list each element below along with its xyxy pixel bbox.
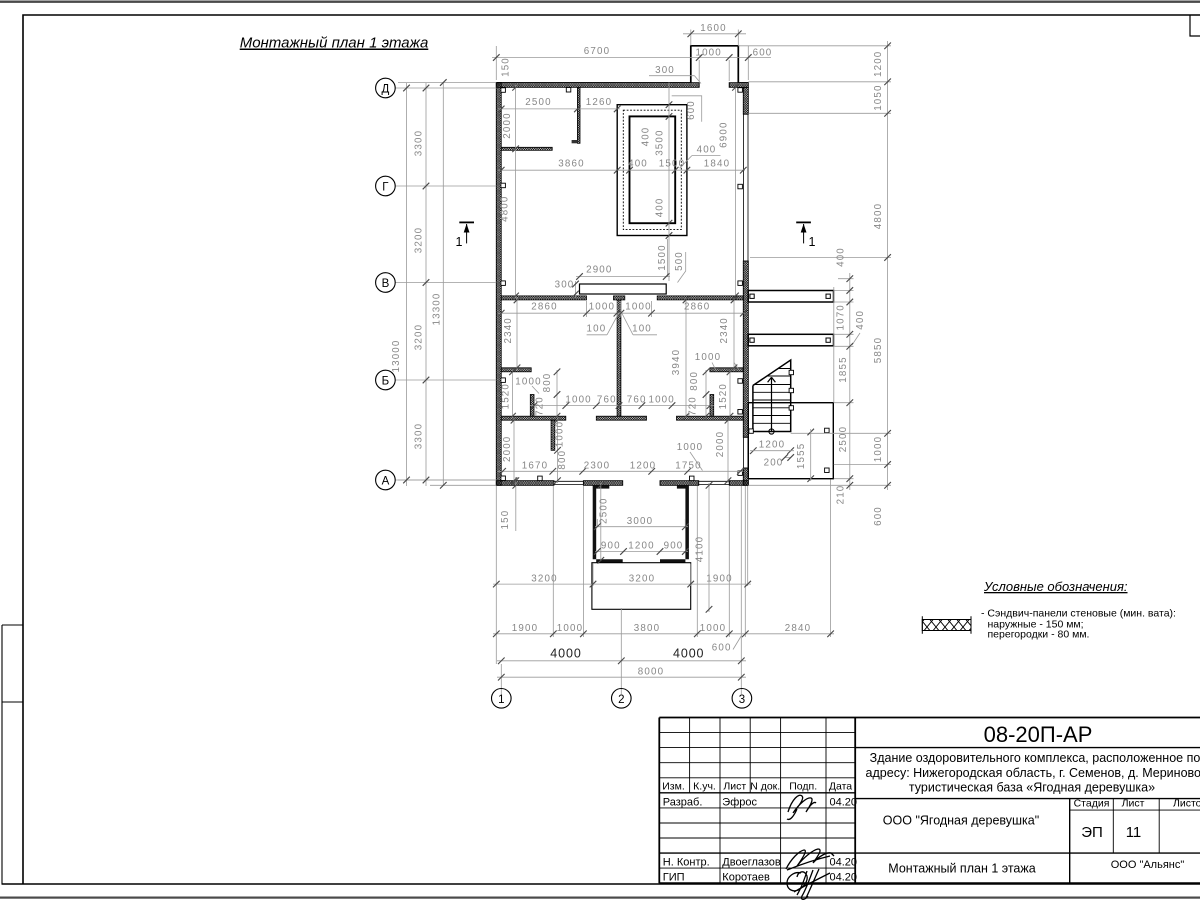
svg-text:Подп.: Подп. [789, 780, 817, 792]
svg-text:6900: 6900 [719, 121, 730, 147]
svg-text:К.уч.: К.уч. [693, 780, 716, 792]
svg-text:1: 1 [498, 694, 504, 706]
svg-text:Разраб.: Разраб. [663, 796, 703, 808]
svg-text:1900: 1900 [706, 574, 732, 585]
svg-text:3200: 3200 [629, 574, 655, 585]
svg-text:760: 760 [627, 395, 647, 406]
svg-text:1000: 1000 [695, 48, 721, 59]
svg-text:400: 400 [655, 198, 666, 218]
svg-text:1000: 1000 [557, 623, 583, 634]
svg-text:4000: 4000 [673, 647, 704, 661]
svg-text:1000: 1000 [515, 376, 541, 387]
svg-text:2860: 2860 [684, 302, 710, 313]
svg-text:В: В [382, 278, 390, 290]
svg-text:Г: Г [382, 182, 389, 194]
svg-text:Н. Контр.: Н. Контр. [663, 856, 710, 868]
svg-text:1000: 1000 [700, 623, 726, 634]
svg-text:2000: 2000 [502, 436, 513, 462]
svg-text:3000: 3000 [627, 516, 653, 527]
svg-text:2000: 2000 [715, 431, 726, 457]
svg-text:1750: 1750 [675, 461, 701, 472]
svg-text:300: 300 [555, 280, 575, 291]
svg-text:200: 200 [764, 457, 784, 468]
svg-text:Изм.: Изм. [662, 780, 685, 792]
svg-text:3940: 3940 [671, 349, 682, 375]
svg-text:8000: 8000 [638, 666, 664, 677]
svg-text:4000: 4000 [550, 647, 581, 661]
svg-text:100: 100 [632, 324, 652, 335]
svg-text:4100: 4100 [695, 536, 706, 562]
svg-text:2340: 2340 [503, 317, 514, 343]
svg-text:800: 800 [689, 371, 700, 391]
svg-text:Двоеглазов: Двоеглазов [722, 856, 781, 868]
svg-text:900: 900 [664, 540, 684, 551]
svg-text:11: 11 [1126, 824, 1142, 841]
svg-text:400: 400 [855, 310, 866, 330]
svg-text:1000: 1000 [677, 442, 703, 453]
svg-text:04.20: 04.20 [830, 871, 858, 883]
svg-text:1600: 1600 [700, 23, 726, 34]
svg-text:1: 1 [456, 235, 463, 249]
svg-text:150: 150 [500, 510, 511, 530]
svg-text:600: 600 [753, 48, 773, 59]
svg-text:1000: 1000 [589, 302, 615, 313]
svg-text:4800: 4800 [873, 203, 884, 229]
svg-text:1900: 1900 [512, 623, 538, 634]
svg-text:2000: 2000 [502, 112, 513, 138]
svg-text:5850: 5850 [873, 337, 884, 363]
svg-text:1520: 1520 [500, 383, 511, 409]
svg-text:3200: 3200 [531, 574, 557, 585]
svg-text:13000: 13000 [391, 340, 402, 373]
svg-text:4800: 4800 [499, 195, 510, 221]
svg-text:1670: 1670 [522, 461, 548, 472]
svg-text:900: 900 [601, 540, 621, 551]
svg-text:800: 800 [542, 373, 553, 393]
svg-text:1500: 1500 [657, 244, 668, 270]
svg-text:600: 600 [873, 506, 884, 526]
svg-text:Д: Д [382, 84, 390, 96]
svg-text:1200: 1200 [630, 461, 656, 472]
svg-text:Б: Б [382, 376, 390, 388]
svg-text:3860: 3860 [558, 159, 584, 170]
svg-text:04.20: 04.20 [830, 796, 858, 808]
svg-text:1000: 1000 [554, 421, 565, 447]
svg-text:2500: 2500 [838, 426, 849, 452]
svg-text:Листов: Листов [1173, 798, 1200, 810]
svg-text:300: 300 [655, 65, 675, 76]
svg-text:3: 3 [739, 694, 745, 706]
svg-text:2500: 2500 [525, 97, 551, 108]
svg-text:13300: 13300 [432, 293, 443, 326]
svg-text:3500: 3500 [655, 129, 666, 155]
svg-text:перегородки - 80 мм.: перегородки - 80 мм. [988, 629, 1090, 641]
svg-text:1855: 1855 [838, 356, 849, 382]
svg-text:Эфрос: Эфрос [722, 796, 757, 808]
svg-text:720: 720 [535, 396, 546, 416]
svg-text:2500: 2500 [599, 497, 610, 523]
svg-text:2300: 2300 [584, 461, 610, 472]
svg-text:1520: 1520 [718, 383, 729, 409]
svg-text:600: 600 [712, 643, 732, 654]
svg-text:6700: 6700 [584, 46, 610, 57]
svg-text:ГИП: ГИП [663, 871, 685, 883]
svg-text:Стадия: Стадия [1074, 798, 1110, 810]
svg-text:2860: 2860 [531, 302, 557, 313]
svg-text:Здание оздоровительного компле: Здание оздоровительного комплекса, распо… [870, 751, 1200, 765]
svg-text:100: 100 [587, 324, 607, 335]
svg-text:Дата: Дата [829, 780, 852, 792]
svg-text:600: 600 [686, 100, 697, 120]
svg-text:N док.: N док. [750, 780, 780, 792]
svg-text:Коротаев: Коротаев [722, 871, 770, 883]
svg-text:08-20П-АР: 08-20П-АР [984, 722, 1093, 747]
svg-text:500: 500 [674, 251, 685, 271]
svg-text:Условные обозначения:: Условные обозначения: [983, 579, 1128, 594]
svg-text:1260: 1260 [586, 97, 612, 108]
svg-text:Лист: Лист [1122, 798, 1145, 810]
svg-text:2340: 2340 [719, 317, 730, 343]
svg-text:400: 400 [640, 127, 651, 147]
svg-text:1200: 1200 [759, 440, 785, 451]
svg-text:2900: 2900 [586, 264, 612, 275]
svg-text:Монтажный план 1 этажа: Монтажный план 1 этажа [240, 35, 429, 52]
svg-text:400: 400 [628, 159, 648, 170]
svg-text:Лист: Лист [723, 780, 746, 792]
svg-text:адресу: Нижегородская область,: адресу: Нижегородская область, г. Семено… [866, 766, 1200, 780]
svg-text:3300: 3300 [414, 423, 425, 449]
svg-text:1000: 1000 [565, 395, 591, 406]
svg-text:04.20: 04.20 [830, 856, 858, 868]
svg-text:1840: 1840 [704, 159, 730, 170]
svg-text:ЭП: ЭП [1081, 824, 1103, 841]
svg-text:1000: 1000 [648, 395, 674, 406]
svg-text:1000: 1000 [625, 302, 651, 313]
svg-text:А: А [382, 476, 390, 488]
svg-text:800: 800 [557, 450, 568, 470]
svg-text:1200: 1200 [873, 51, 884, 77]
svg-text:150: 150 [501, 57, 512, 77]
svg-text:3200: 3200 [414, 227, 425, 253]
svg-text:1000: 1000 [695, 352, 721, 363]
svg-text:3800: 3800 [634, 623, 660, 634]
svg-text:760: 760 [597, 395, 617, 406]
svg-text:720: 720 [688, 396, 699, 416]
svg-text:1200: 1200 [628, 540, 654, 551]
svg-text:400: 400 [836, 247, 847, 267]
svg-text:3200: 3200 [414, 324, 425, 350]
svg-text:1050: 1050 [873, 84, 884, 110]
svg-text:1: 1 [809, 235, 816, 249]
svg-text:1000: 1000 [873, 436, 884, 462]
svg-text:туристическая база «Ягодная де: туристическая база «Ягодная деревушка» [909, 781, 1155, 795]
svg-text:Монтажный план 1 этажа: Монтажный план 1 этажа [888, 862, 1035, 876]
svg-text:2: 2 [618, 694, 624, 706]
svg-text:ООО "Ягодная деревушка": ООО "Ягодная деревушка" [883, 814, 1039, 828]
svg-text:3300: 3300 [414, 130, 425, 156]
svg-text:400: 400 [697, 144, 717, 155]
svg-text:1070: 1070 [836, 304, 847, 330]
svg-text:1500: 1500 [659, 159, 685, 170]
svg-text:ООО "Альянс": ООО "Альянс" [1111, 859, 1185, 871]
svg-text:1555: 1555 [796, 443, 807, 469]
svg-text:210: 210 [836, 485, 847, 505]
svg-text:2840: 2840 [785, 623, 811, 634]
